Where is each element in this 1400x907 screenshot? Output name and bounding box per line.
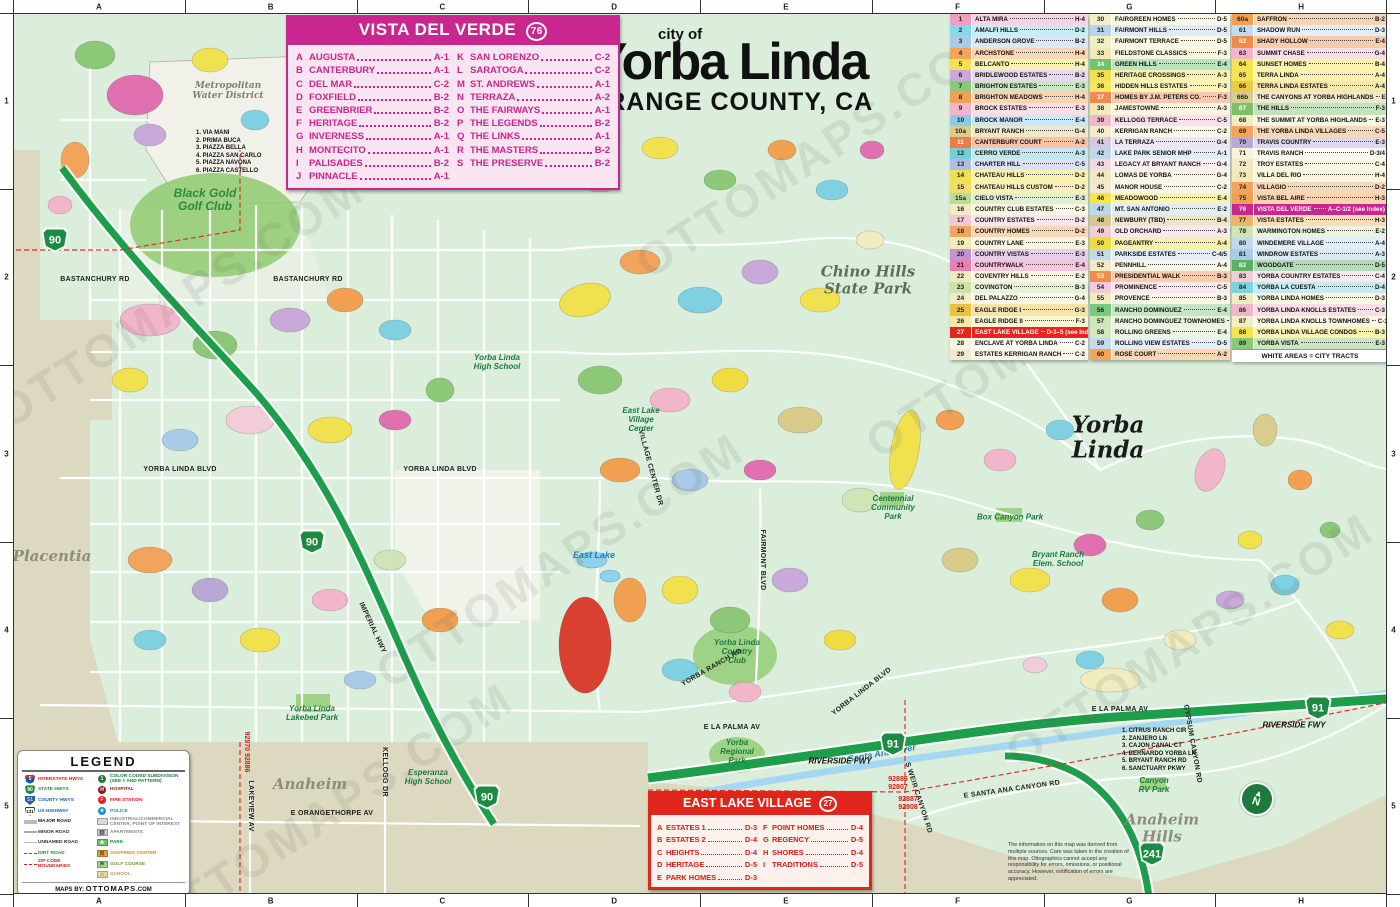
index-row: 88 YORBA LINDA VILLAGE CONDOS B-3 (1232, 327, 1388, 338)
leader-dots (1348, 130, 1373, 131)
legend-item-icon: 5 (22, 775, 38, 784)
leader-dots (806, 854, 848, 855)
ruler-col-label: B (268, 896, 274, 905)
legend-title: LEGEND (22, 754, 185, 772)
index-row-cell: SUNSET HOMES B-4 (1254, 59, 1388, 70)
index-row-ref: H-4 (1075, 61, 1085, 68)
vdv-entry-ref: B-2 (434, 92, 449, 103)
leader-dots (1014, 286, 1073, 287)
index-row: 19 COUNTRY LANE E-3 (950, 237, 1088, 248)
index-row-number: 82 (1232, 260, 1254, 271)
index-row: 30 FAIRGREEN HOMES D-5 (1090, 14, 1230, 25)
index-row: 10 BROCK MANOR E-4 (950, 115, 1088, 126)
index-row-cell: VILLA DEL RIO H-4 (1254, 170, 1388, 181)
index-row-ref: A-3 (1375, 251, 1385, 258)
index-row: 63 SUMMIT CHASE G-4 (1232, 48, 1388, 59)
legend-glyph-icon (24, 842, 37, 843)
index-row-name: VISTA ESTATES (1257, 217, 1304, 224)
index-row: 31 FAIRMONT HILLS D-5 (1090, 25, 1230, 36)
leader-dots (1305, 163, 1373, 164)
index-row-name: CHARTER HILL (975, 161, 1021, 168)
elv-entry: G REGENCY D-5 (763, 832, 863, 845)
elv-entry-ref: D-5 (745, 860, 757, 869)
index-row-name: SAFFRON (1257, 16, 1287, 23)
index-row-number: 73 (1232, 170, 1254, 181)
leader-dots (541, 59, 592, 61)
index-row-number: 15 (950, 182, 972, 193)
index-row-cell: ROLLING VIEW ESTATES D-5 (1112, 338, 1230, 349)
elv-entry-letter: C (657, 848, 666, 857)
legend-item-label: US HIGHWAY (38, 809, 68, 814)
index-row-number: 56 (1090, 304, 1112, 315)
vdv-entry-ref: A-2 (595, 92, 610, 103)
legend-item-icon: ⌂ (94, 871, 110, 878)
index-row-ref: D-5 (1217, 340, 1227, 347)
index-row-number: 46 (1090, 193, 1112, 204)
index-row-ref: E-4 (1217, 329, 1227, 336)
elv-entry-letter: F (763, 823, 772, 832)
leader-dots (811, 841, 848, 842)
vdv-entry-name: INVERNESS (309, 131, 364, 142)
index-row-cell: HOMES BY J.M. PETERS CO. F-3 (1112, 92, 1230, 103)
index-row-number: 87 (1232, 316, 1254, 327)
legend-footer: MAPS BY: OTTOMAPS.COM (22, 882, 185, 893)
index-row-name: ROLLING GREENS (1115, 329, 1171, 336)
index-row-number: 81 (1232, 249, 1254, 260)
vdv-entry-letter: B (296, 65, 309, 76)
ruler-row-label: 1 (1391, 97, 1395, 106)
index-row-ref: E-4 (1075, 262, 1085, 269)
index-row-name: HOMES BY J.M. PETERS CO. (1115, 94, 1201, 101)
index-row-name: MANOR HOUSE (1115, 184, 1162, 191)
leader-dots (1326, 242, 1373, 243)
leader-dots (1023, 309, 1073, 310)
legend-item-label: SCHOOL (110, 872, 131, 877)
index-row-number: 63 (1232, 48, 1254, 59)
elv-entry-name: SHORES (772, 848, 804, 857)
leader-dots (1148, 264, 1215, 265)
index-row-name: JAMESTOWNE (1115, 105, 1159, 112)
index-row-ref: D-2 (1075, 184, 1085, 191)
index-row-cell: YORBA LA CUESTA D-4 (1254, 282, 1388, 293)
index-row-name: PROMINENCE (1115, 284, 1157, 291)
index-row: 72 TROY ESTATES C-4 (1232, 159, 1388, 170)
legend-item-icon: F (94, 796, 110, 804)
leader-dots (1163, 230, 1215, 231)
index-row-ref: A-3 (1217, 105, 1227, 112)
index-row-ref: B-4 (1217, 217, 1227, 224)
legend-panel: LEGEND 5 INTERSTATE HWYS 90 STATE HWYS (17, 750, 190, 896)
index-row-number: 31 (1090, 25, 1112, 36)
legend-item-label: ZIP CODE BOUNDARIES (38, 859, 94, 869)
index-row: 50 PAGEANTRY A-4 (1090, 237, 1230, 248)
leader-dots (1031, 253, 1074, 254)
index-row-name: YORBA LINDA KNOLLS TOWNHOMES (1257, 318, 1370, 325)
vdv-entry-letter: I (296, 158, 309, 169)
index-row-cell: JAMESTOWNE A-3 (1112, 103, 1230, 114)
index-row-cell: COUNTRY HOMES D-2 (972, 226, 1088, 237)
index-row-cell: CANTERBURY COURT A-2 (972, 137, 1088, 148)
index-row-name: TRAVIS COUNTRY (1257, 139, 1311, 146)
index-row-number: 78 (1232, 226, 1254, 237)
compass-n-label: N (1250, 796, 1261, 809)
ruler-row-label: 2 (4, 273, 8, 282)
index-row-cell: SAFFRON B-2 (1254, 14, 1388, 25)
index-row-cell: MANOR HOUSE C-2 (1112, 182, 1230, 193)
index-row: 14 CHATEAU HILLS D-2 (950, 170, 1088, 181)
index-row-number: 66b (1232, 92, 1254, 103)
index-row-cell: ARCHSTONE H-4 (972, 48, 1088, 59)
leader-dots (1032, 230, 1073, 231)
index-row-name: CANTERBURY COURT (975, 139, 1042, 146)
vdv-entry-ref: A-1 (434, 65, 449, 76)
legend-item-icon (94, 818, 110, 825)
index-row: 57 RANCHO DOMINGUEZ TOWNHOMES E-4 (1090, 316, 1230, 327)
leader-dots (374, 112, 430, 114)
vdv-entry-letter: R (457, 145, 470, 156)
vdv-entry: K SAN LORENZO C-2 (457, 50, 610, 63)
index-row-number: 15a (950, 193, 972, 204)
index-row: 45 MANOR HOUSE C-2 (1090, 182, 1230, 193)
leader-dots (537, 86, 592, 88)
index-row: 44 LOMAS DE YORBA G-4 (1090, 170, 1230, 181)
index-row-name: RANCHO DOMINGUEZ (1115, 307, 1182, 314)
index-row-ref: A-3 (1217, 228, 1227, 235)
index-row-name: YORBA LA CUESTA (1257, 284, 1316, 291)
vdv-entry-ref: A-1 (434, 131, 449, 142)
index-row-ref: C-5 (1375, 128, 1385, 135)
leader-dots (1358, 309, 1373, 310)
legend-item-label: GOLF COURSE (110, 862, 145, 867)
leader-dots (1179, 119, 1215, 120)
vdv-entry: O THE FAIRWAYS A-1 (457, 103, 610, 116)
index-row-ref: D-2 (1075, 172, 1085, 179)
index-row: 84 YORBA LA CUESTA D-4 (1232, 282, 1388, 293)
index-row: 16 COUNTRY CLUB ESTATES C-3 (950, 204, 1088, 215)
index-row-ref: E-3 (1075, 105, 1085, 112)
legend-item: DIRT ROAD (22, 848, 94, 859)
index-row-name: KELLOGG TERRACE (1115, 117, 1177, 124)
index-row-name: PROVENCE (1115, 295, 1150, 302)
elv-entry-ref: D-3 (745, 823, 757, 832)
index-row-ref: C-2 (1075, 340, 1085, 347)
leader-dots (1178, 253, 1210, 254)
index-row: 33 FIELDSTONE CLASSICS F-3 (1090, 48, 1230, 59)
index-row-ref: H-4 (1075, 94, 1085, 101)
index-row: 48 NEWBURY (TBD) B-4 (1090, 215, 1230, 226)
legend-glyph-icon (24, 820, 37, 824)
legend-item-icon (22, 853, 38, 854)
index-row-name: LEGACY AT BRYANT RANCH (1115, 161, 1201, 168)
ruler-col-label: H (1298, 2, 1304, 11)
index-row-ref: D-4 (1375, 284, 1385, 291)
vdv-entry-ref: A-1 (595, 79, 610, 90)
vdv-entry-letter: Q (457, 131, 470, 142)
index-row-cell: LAKE PARK SENIOR MHP A-1 (1112, 148, 1230, 159)
index-row: 36 HIDDEN HILLS ESTATES F-3 (1090, 81, 1230, 92)
index-row: 68 THE SUMMIT AT YORBA HIGHLANDS E-3 (1232, 115, 1388, 126)
index-row-number: 7 (950, 81, 972, 92)
index-row-name: YORBA LINDA VILLAGE CONDOS (1257, 329, 1357, 336)
index-row-cell: TERRA LINDA A-4 (1254, 70, 1388, 81)
index-row-cell: MT. SAN ANTONIO E-2 (1112, 204, 1230, 215)
index-row-ref: A-4 (1375, 240, 1385, 247)
ruler-row-label: 2 (1391, 273, 1395, 282)
index-row-cell: YORBA VISTA E-3 (1254, 338, 1388, 349)
index-row-cell: CHATEAU HILLS D-2 (972, 170, 1088, 181)
legend-item-label: DIRT ROAD (38, 851, 65, 856)
ruler-col-label: D (611, 896, 617, 905)
index-row-ref: D-5 (1217, 38, 1227, 45)
index-row-ref: E-2 (1075, 273, 1085, 280)
index-row-ref: C-2 (1217, 128, 1227, 135)
vdv-entry-ref: B-2 (434, 158, 449, 169)
elv-entry-name: HEIGHTS (666, 848, 699, 857)
index-row-name: COUNTRY LANE (975, 240, 1024, 247)
index-row: 86 YORBA LINDA KNOLLS ESTATES C-3 (1232, 304, 1388, 315)
ruler-bottom: ABCDEFGH (0, 893, 1400, 907)
index-row-name: YORBA LINDA HOMES (1257, 295, 1324, 302)
index-row-name: SUNSET HOMES (1257, 61, 1307, 68)
legend-item-icon: 90 (22, 785, 38, 794)
index-row-ref: D-2 (1075, 228, 1085, 235)
index-row-number: 17 (950, 215, 972, 226)
index-row: 74 VILLAGIO D-2 (1232, 182, 1388, 193)
leader-dots (1020, 29, 1073, 30)
index-row-ref: B-2 (1075, 72, 1085, 79)
index-row-number: 84 (1232, 282, 1254, 293)
index-row-number: 65 (1232, 70, 1254, 81)
index-row-ref: D-2 (1075, 217, 1085, 224)
index-row-name: COUNTRY CLUB ESTATES (975, 206, 1054, 213)
leader-dots (1152, 297, 1215, 298)
index-row-cell: RANCHO DOMINGUEZ E-4 (1112, 304, 1230, 315)
index-row-number: 76 (1232, 204, 1254, 215)
index-row-cell: NEWBURY (TBD) B-4 (1112, 215, 1230, 226)
index-row-ref: F-3 (1218, 83, 1227, 90)
index-row: 10a BRYANT RANCH G-4 (950, 126, 1088, 137)
legend-item-label: MINOR ROAD (38, 830, 69, 835)
index-row-number: 55 (1090, 293, 1112, 304)
legend-glyph-icon: H (98, 786, 106, 794)
index-row-name: VISTA BEL AIRE (1257, 195, 1305, 202)
index-row-name: COUNTRY ESTATES (975, 217, 1035, 224)
index-row-cell: COVENTRY HILLS E-2 (972, 271, 1088, 282)
index-row: 89 YORBA VISTA E-3 (1232, 338, 1388, 349)
index-row-cell: ANDERSON GROVE B-2 (972, 36, 1088, 47)
leader-dots (1376, 96, 1380, 97)
highway-shield-number: 90 (44, 230, 67, 251)
index-row-ref: G-4 (1075, 128, 1085, 135)
index-row-ref: F-3 (1076, 318, 1085, 325)
index-row: 37 HOMES BY J.M. PETERS CO. F-3 (1090, 92, 1230, 103)
legend-item: 90 STATE HWYS (22, 785, 94, 796)
index-row-number: 70 (1232, 137, 1254, 148)
index-row-cell: SHADOW RUN D-3 (1254, 25, 1388, 36)
index-row: 29 ESTATES KERRIGAN RANCH C-2 (950, 349, 1088, 360)
index-row-number: 8 (950, 92, 972, 103)
index-row-cell: ROSE COURT A-2 (1112, 349, 1230, 360)
index-row-number: 27 (950, 327, 972, 338)
index-row-cell: OLD ORCHARD A-3 (1112, 226, 1230, 237)
index-row: 54 PROMINENCE C-5 (1090, 282, 1230, 293)
index-row-cell: ROLLING GREENS E-4 (1112, 327, 1230, 338)
index-row-name: TERRA LINDA ESTATES (1257, 83, 1328, 90)
ruler-right: 12345 (1386, 0, 1400, 907)
leader-dots (1289, 18, 1373, 19)
legend-item-label: INTERSTATE HWYS (38, 777, 83, 782)
index-row-name: LAKE PARK SENIOR MHP (1115, 150, 1192, 157)
leader-dots (1190, 85, 1216, 86)
index-row-cell: ALTA MIRA H-4 (972, 14, 1088, 25)
index-row-name: PRESIDENTIAL WALK (1115, 273, 1180, 280)
index-row-cell: WOODGATE D-5 (1254, 260, 1388, 271)
index-row: 43 LEGACY AT BRYANT RANCH G-4 (1090, 159, 1230, 170)
index-row-cell: PARKSIDE ESTATES C-4/5 (1112, 249, 1230, 260)
index-row-number: 35 (1090, 70, 1112, 81)
index-row: 53 PRESIDENTIAL WALK B-3 (1090, 271, 1230, 282)
elv-entry-letter: A (657, 823, 666, 832)
index-row-number: 41 (1090, 137, 1112, 148)
ruler-row-label: 5 (4, 801, 8, 810)
index-row-ref: F-3 (1218, 94, 1227, 101)
vdv-entry: P THE LEGENDS B-2 (457, 116, 610, 129)
ruler-top: ABCDEFGH (0, 0, 1400, 14)
index-row: 77 VISTA ESTATES H-3 (1232, 215, 1388, 226)
legend-item-label: STATE HWYS (38, 787, 69, 792)
index-row-cell: EAGLE RIDGE II F-3 (972, 316, 1088, 327)
leader-dots (1318, 286, 1373, 287)
index-row-number: 29 (950, 349, 972, 360)
index-row-cell: MEADOWOOD E-4 (1112, 193, 1230, 204)
index-row-number: 61 (1232, 25, 1254, 36)
index-row-cell: LOMAS DE YORBA G-4 (1112, 170, 1230, 181)
index-row-name: EAST LAKE VILLAGE (975, 329, 1039, 336)
index-row-name: FAIRGREEN HOMES (1115, 16, 1176, 23)
vdv-entry-name: GREENBRIER (309, 105, 372, 116)
elv-entry-name: POINT HOMES (772, 823, 825, 832)
index-row-ref: E-2 (1375, 228, 1385, 235)
legend-item: ⚑ GOLF COURSE (94, 859, 185, 870)
index-row: 25 EAGLE RIDGE I G-3 (950, 304, 1088, 315)
index-row-cell: CIELO VISTA E-3 (972, 193, 1088, 204)
leader-dots (1330, 85, 1373, 86)
index-row-ref: D-5 (1375, 262, 1385, 269)
vdv-entry-letter: C (296, 79, 309, 90)
index-row-cell: KELLOGG TERRACE C-5 (1112, 115, 1230, 126)
highway-shield: 91 (1305, 696, 1332, 721)
index-row-ref: H-4 (1075, 16, 1085, 23)
index-row-name: CHATEAU HILLS (975, 172, 1024, 179)
index-row-number: 30 (1090, 14, 1112, 25)
leader-dots (358, 99, 431, 101)
leader-dots (1160, 197, 1215, 198)
index-row: 71 TRAVIS RANCH D-3/4 (1232, 148, 1388, 159)
elv-entry-letter: H (763, 848, 772, 857)
highway-shield: 90 (474, 785, 501, 810)
index-row-cell: ESTATES KERRIGAN RANCH C-2 (972, 349, 1088, 360)
ruler-row-label: 5 (1391, 801, 1395, 810)
index-row-ref: E-2 (1217, 206, 1227, 213)
index-row-ref: E-3 (1075, 83, 1085, 90)
legend-footer-brand: OTTOMAPS (86, 884, 136, 893)
index-row-number: 23 (950, 282, 972, 293)
index-row: 24 DEL PALAZZO G-4 (950, 293, 1088, 304)
vdv-entry-ref: B-2 (595, 145, 610, 156)
index-row-name: WINDEMERE VILLAGE (1257, 240, 1324, 247)
index-row-ref: A-2 (1217, 351, 1227, 358)
index-row-ref: E-4 (1217, 61, 1227, 68)
legend-item: 5 INTERSTATE HWYS (22, 774, 94, 785)
elv-entry: D HERITAGE D-5 (657, 857, 757, 870)
index-row: 15 CHATEAU HILLS CUSTOM D-2 (950, 182, 1088, 193)
legend-item: MINOR ROAD (22, 827, 94, 838)
elv-entry-ref: D-4 (851, 823, 863, 832)
vdv-entry: M ST. ANDREWS A-1 (457, 76, 610, 89)
leader-dots (1045, 96, 1073, 97)
index-row: 17 COUNTRY ESTATES D-2 (950, 215, 1088, 226)
vista-del-verde-title: VISTA DEL VERDE (359, 20, 516, 39)
vdv-entry-letter: S (457, 158, 470, 169)
index-row-name: BROCK ESTATES (975, 105, 1027, 112)
index-row-ref: D-5 (1217, 16, 1227, 23)
elv-entry-letter: I (763, 860, 772, 869)
leader-dots (1307, 197, 1373, 198)
index-row-ref: B-3 (1217, 273, 1227, 280)
index-row-number: 60 (1090, 349, 1112, 360)
index-footer-wrap: WHITE AREAS = CITY TRACTS (1232, 349, 1388, 362)
index-row-name: THE HILLS (1257, 105, 1289, 112)
index-row: 65 TERRA LINDA A-4 (1232, 70, 1388, 81)
index-row-ref: E-3 (1375, 117, 1385, 124)
index-row-cell: YORBA LINDA VILLAGE CONDOS B-3 (1254, 327, 1388, 338)
index-row: 4 ARCHSTONE H-4 (950, 48, 1088, 59)
index-row-name: TROY ESTATES (1257, 161, 1303, 168)
index-row-number: 22 (950, 271, 972, 282)
vdv-entry-letter: H (296, 145, 309, 156)
vista-del-verde-number: 76 (526, 22, 547, 41)
index-row: 60a SAFFRON B-2 (1232, 14, 1388, 25)
index-row-cell: TERRA LINDA ESTATES A-4 (1254, 81, 1388, 92)
leader-dots (1159, 286, 1215, 287)
ruler-col-label: A (96, 896, 102, 905)
ruler-col-label: C (439, 896, 445, 905)
index-row-name: BRIDLEWOOD ESTATES (975, 72, 1047, 79)
index-row-ref: E-3 (1375, 139, 1385, 146)
index-row-number: 57 (1090, 316, 1112, 327)
index-row-ref: G-4 (1217, 139, 1227, 146)
index-row-number: 10 (950, 115, 972, 126)
index-row-cell: SHADY HOLLOW E-4 (1254, 36, 1388, 47)
leader-dots (1167, 219, 1215, 220)
vdv-entry-ref: A-1 (595, 105, 610, 116)
index-row-cell: LA TERRAZA G-4 (1112, 137, 1230, 148)
index-row-name: GREEN HILLS (1115, 61, 1157, 68)
vdv-entry-ref: C-2 (595, 52, 610, 63)
index-row-number: 44 (1090, 170, 1112, 181)
leader-dots (1161, 107, 1215, 108)
elv-entry-ref: D-4 (745, 835, 757, 844)
leader-dots (359, 125, 430, 127)
leader-dots (1303, 174, 1373, 175)
index-row-number: 45 (1090, 182, 1112, 193)
index-row-name: BROCK MANOR (975, 117, 1023, 124)
index-row-number: 13 (950, 159, 972, 170)
vdv-entry-letter: P (457, 118, 470, 129)
index-row: 35 HERITAGE CROSSINGS A-3 (1090, 70, 1230, 81)
ruler-row-label: 3 (1391, 449, 1395, 458)
index-row-cell: GREEN HILLS E-4 (1112, 59, 1230, 70)
